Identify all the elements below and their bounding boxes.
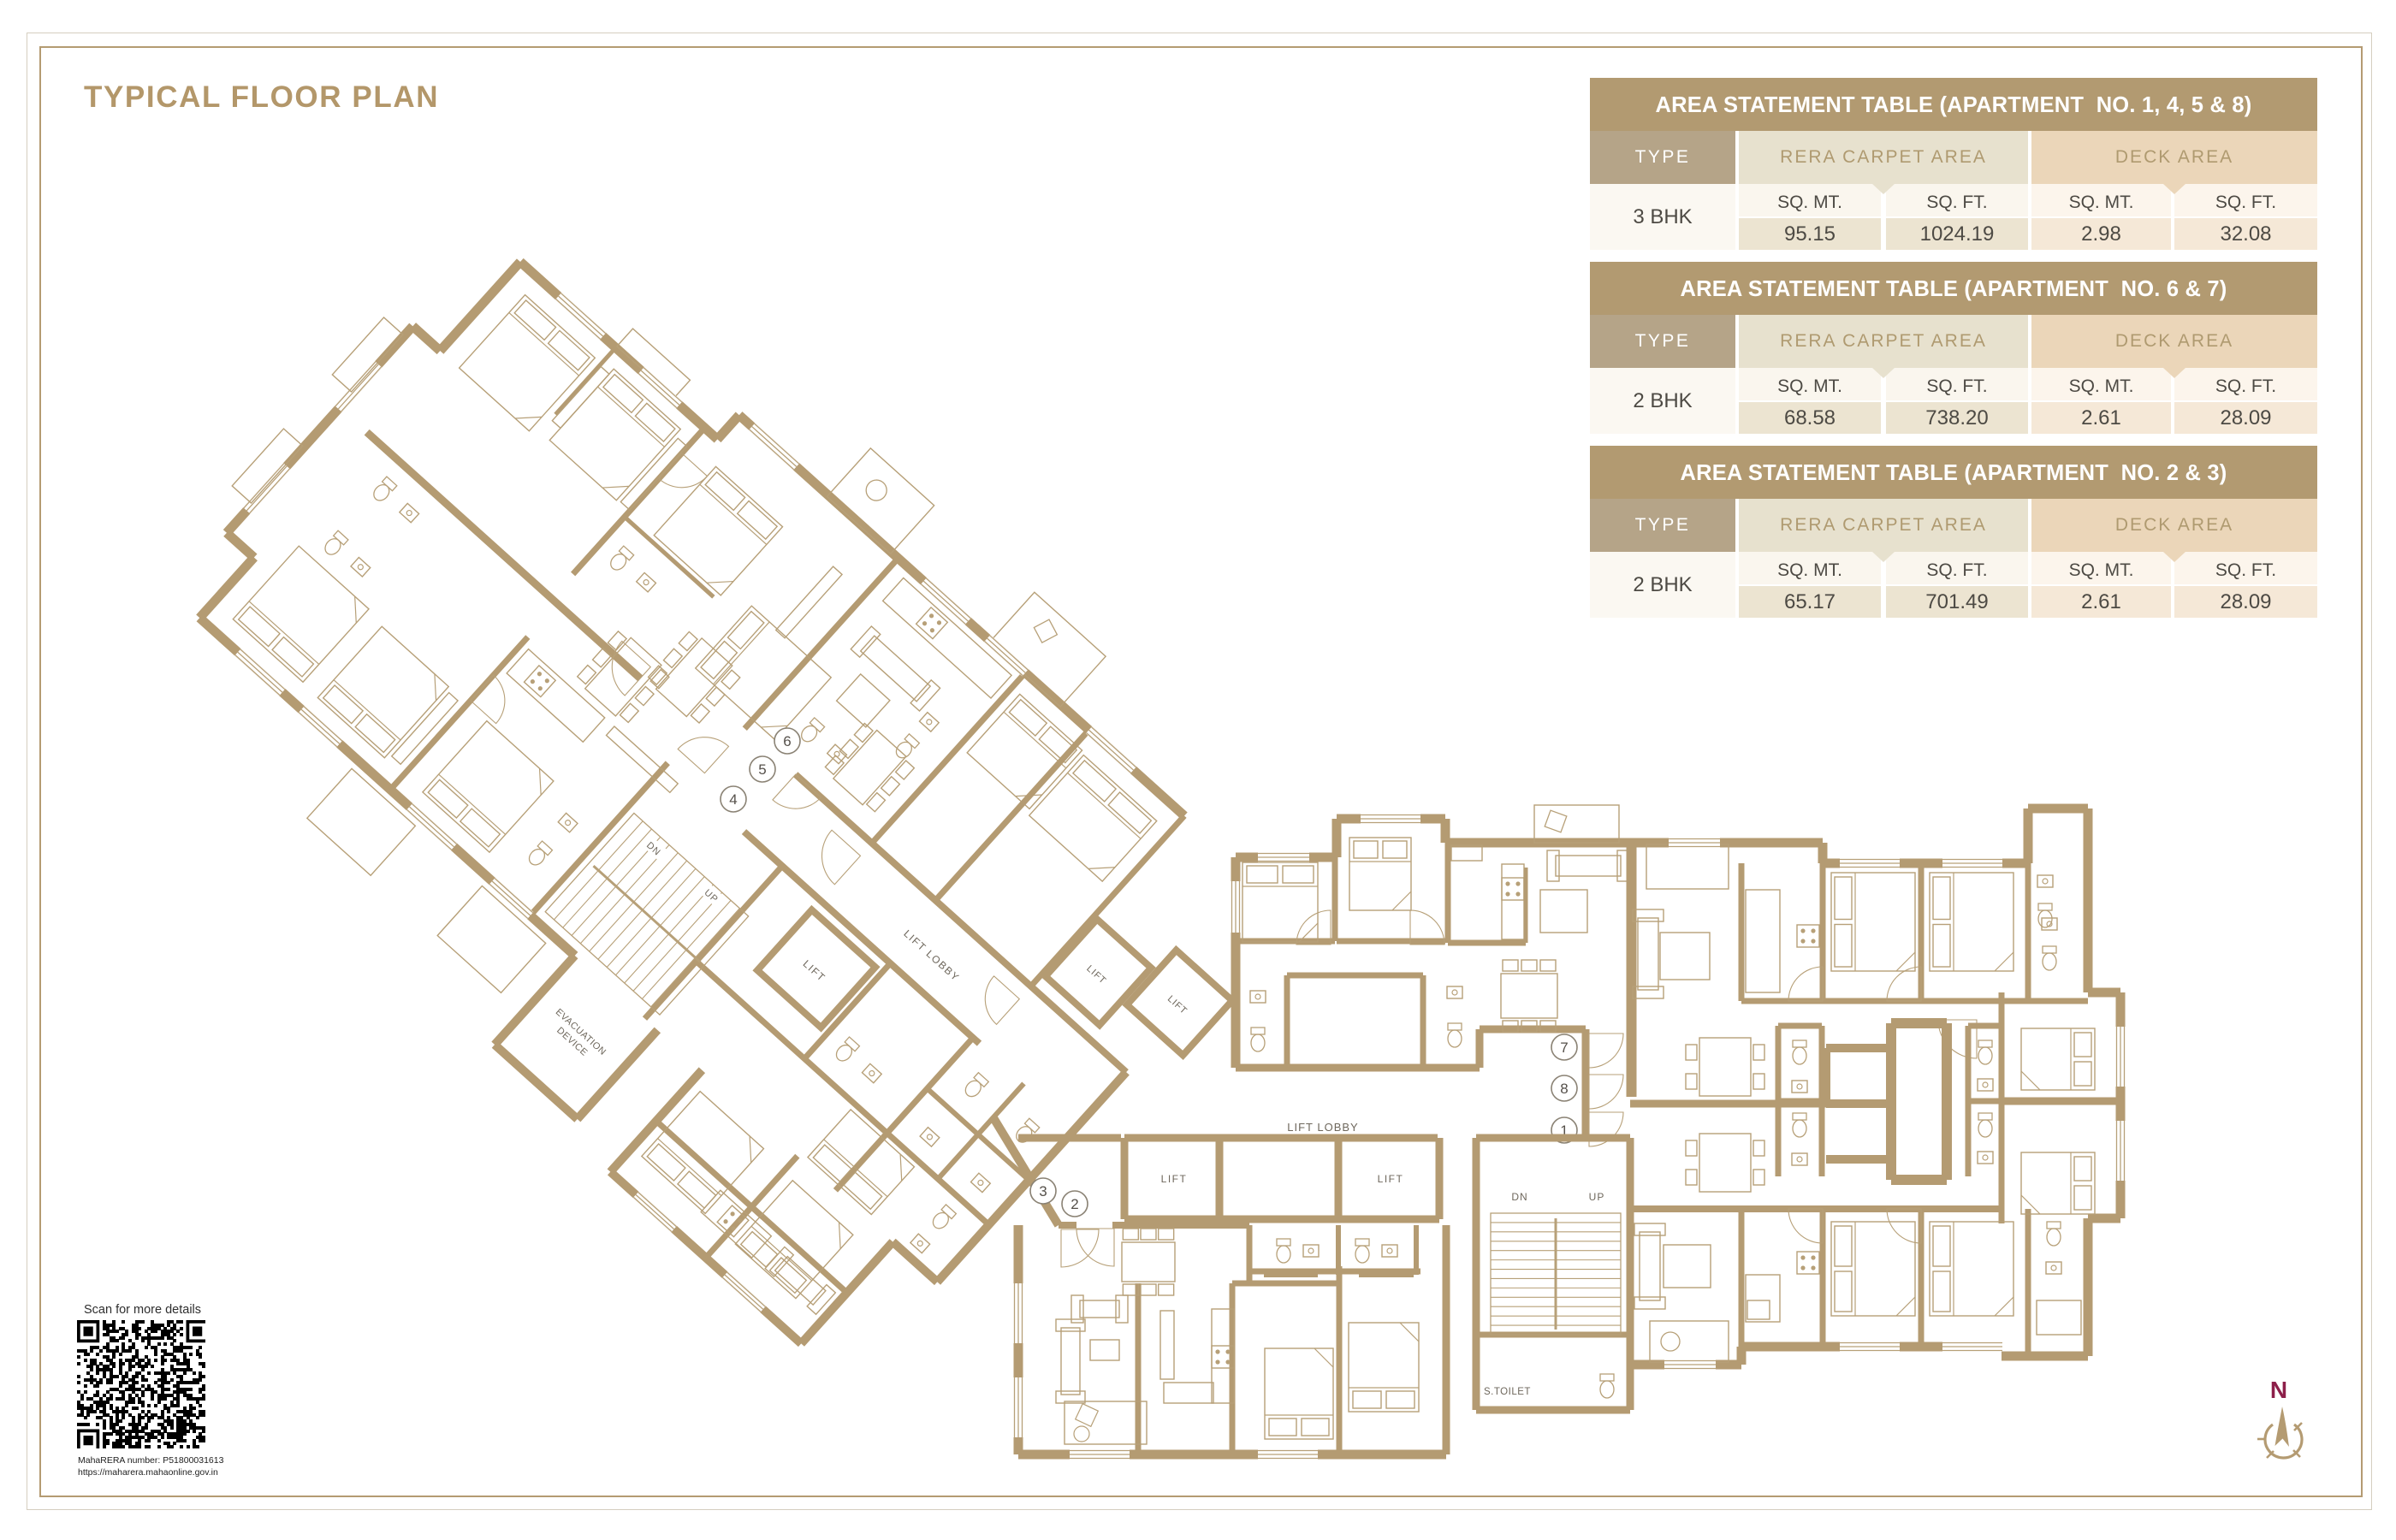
svg-text:LIFT LOBBY: LIFT LOBBY	[1287, 1121, 1358, 1134]
svg-text:5: 5	[758, 761, 766, 778]
svg-text:UP: UP	[1589, 1191, 1605, 1203]
svg-text:4: 4	[729, 791, 737, 808]
svg-text:LIFT LOBBY: LIFT LOBBY	[901, 927, 962, 984]
svg-text:LIFT: LIFT	[1161, 1173, 1188, 1185]
svg-text:LIFT: LIFT	[1378, 1173, 1404, 1185]
svg-text:S.TOILET: S.TOILET	[1484, 1387, 1531, 1397]
svg-text:8: 8	[1560, 1081, 1568, 1097]
svg-text:LIFT: LIFT	[1165, 994, 1189, 1017]
svg-text:2: 2	[1070, 1196, 1078, 1212]
svg-text:6: 6	[783, 733, 791, 749]
svg-text:DN: DN	[1511, 1191, 1527, 1203]
svg-text:N: N	[2270, 1377, 2287, 1403]
svg-text:LIFT: LIFT	[1084, 963, 1108, 986]
svg-text:7: 7	[1560, 1039, 1568, 1056]
svg-text:3: 3	[1039, 1183, 1047, 1199]
svg-text:LIFT: LIFT	[801, 957, 828, 984]
